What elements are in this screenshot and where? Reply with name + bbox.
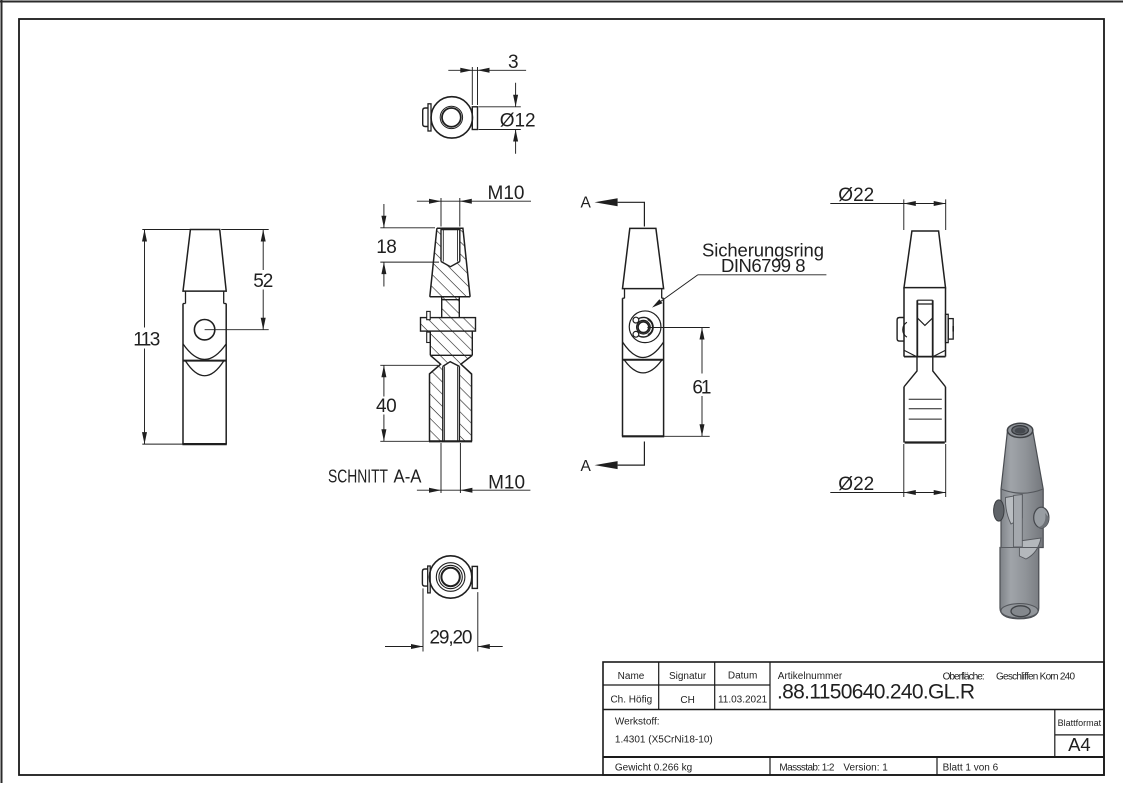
- svg-text:Gewicht 0.266 kg: Gewicht 0.266 kg: [615, 763, 692, 774]
- svg-text:Blattformat: Blattformat: [1058, 718, 1102, 728]
- svg-text:A4: A4: [1068, 734, 1091, 755]
- svg-text:113: 113: [133, 329, 160, 350]
- svg-text:Signatur: Signatur: [669, 671, 707, 682]
- svg-text:61: 61: [692, 378, 711, 399]
- svg-text:29,20: 29,20: [430, 628, 473, 649]
- svg-text:.88.1150640.240.GL.R: .88.1150640.240.GL.R: [777, 680, 975, 703]
- svg-text:A-A: A-A: [394, 465, 423, 486]
- svg-text:SCHNITT: SCHNITT: [328, 465, 388, 486]
- svg-text:Ø12: Ø12: [500, 110, 536, 131]
- svg-text:Ø22: Ø22: [838, 185, 874, 206]
- svg-text:M10: M10: [488, 183, 525, 204]
- svg-text:52: 52: [253, 271, 273, 292]
- svg-text:DIN6799 8: DIN6799 8: [721, 255, 806, 276]
- svg-text:11.03.2021: 11.03.2021: [718, 694, 768, 705]
- svg-text:CH: CH: [680, 695, 694, 706]
- svg-text:Datum: Datum: [728, 671, 757, 682]
- svg-text:Geschliffen Korn 240: Geschliffen Korn 240: [996, 672, 1075, 683]
- svg-text:Werkstoff:: Werkstoff:: [615, 717, 660, 728]
- svg-text:A: A: [581, 458, 592, 475]
- svg-text:Ch. Höfig: Ch. Höfig: [610, 694, 652, 705]
- svg-text:1.4301 (X5CrNi18-10): 1.4301 (X5CrNi18-10): [615, 735, 713, 746]
- svg-text:Name: Name: [618, 671, 645, 682]
- svg-text:Ø22: Ø22: [838, 474, 874, 495]
- svg-text:3: 3: [508, 52, 519, 73]
- svg-text:18: 18: [376, 237, 396, 258]
- svg-text:A: A: [581, 195, 592, 212]
- svg-text:M10: M10: [488, 472, 525, 493]
- svg-text:Massstab: 1:2: Massstab: 1:2: [779, 763, 834, 774]
- svg-text:Blatt 1 von 6: Blatt 1 von 6: [943, 763, 999, 774]
- svg-text:Version: 1: Version: 1: [843, 763, 888, 774]
- svg-text:40: 40: [376, 396, 396, 417]
